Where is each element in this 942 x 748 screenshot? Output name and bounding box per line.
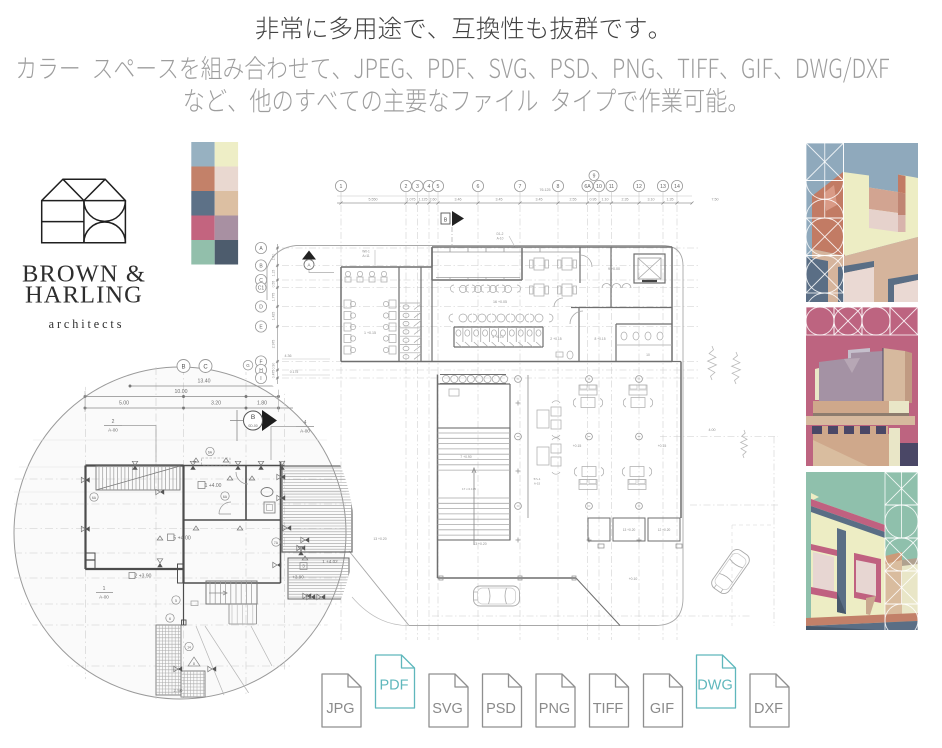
svg-text:B: B	[181, 365, 185, 371]
svg-text:13: 13	[660, 184, 666, 190]
svg-text:PNG: PNG	[539, 701, 570, 717]
svg-text:D: D	[259, 305, 263, 311]
svg-text:B: B	[251, 414, 255, 421]
svg-text:17 x 0.175: 17 x 0.175	[462, 487, 476, 491]
svg-text:I: I	[260, 376, 261, 382]
svg-text:D1-2: D1-2	[497, 232, 504, 236]
svg-text:PDF: PDF	[380, 678, 409, 694]
svg-text:3.10: 3.10	[648, 198, 655, 202]
svg-text:0.90: 0.90	[272, 363, 276, 370]
svg-text:10.00: 10.00	[175, 389, 188, 395]
svg-text:1.15: 1.15	[272, 270, 276, 277]
svg-text:SVG: SVG	[432, 701, 463, 717]
svg-text:C: C	[203, 365, 208, 371]
svg-text:12 +0.20: 12 +0.20	[658, 528, 671, 532]
svg-text:architects: architects	[49, 317, 125, 331]
svg-text:6: 6	[477, 184, 480, 190]
svg-text:3.20: 3.20	[211, 401, 221, 407]
svg-text:13.40: 13.40	[198, 379, 211, 385]
svg-text:0D-00: 0D-00	[248, 424, 257, 428]
svg-text:JPG: JPG	[326, 701, 354, 717]
svg-text:2.55: 2.55	[570, 198, 577, 202]
svg-text:0.475: 0.475	[272, 370, 276, 379]
svg-text:12: 12	[636, 184, 642, 190]
svg-text:0.95: 0.95	[590, 198, 597, 202]
svg-text:6A: 6A	[92, 496, 97, 500]
svg-text:TIFF: TIFF	[593, 701, 624, 717]
svg-text:1 +0.15: 1 +0.15	[364, 331, 376, 335]
svg-text:A-00: A-00	[99, 595, 109, 600]
svg-text:57+1: 57+1	[534, 477, 541, 481]
svg-text:5.00: 5.00	[119, 401, 129, 407]
svg-text:A-10: A-10	[497, 237, 504, 241]
svg-text:6: 6	[169, 617, 171, 621]
svg-text:7 +0.90: 7 +0.90	[460, 455, 472, 459]
svg-text:10: 10	[596, 184, 602, 190]
svg-text:9 +0.00: 9 +0.00	[608, 267, 620, 271]
svg-text:11: 11	[609, 184, 614, 190]
svg-text:2.35: 2.35	[622, 198, 629, 202]
svg-text:1: 1	[340, 184, 343, 190]
svg-text:6A: 6A	[584, 184, 591, 190]
svg-text:DWG: DWG	[697, 678, 732, 694]
svg-text:A-15: A-15	[534, 482, 541, 486]
svg-text:A-00: A-00	[108, 428, 118, 433]
svg-text:C1: C1	[258, 286, 265, 292]
svg-text:7: 7	[519, 184, 522, 190]
svg-text:8: 8	[557, 184, 560, 190]
svg-text:3: 3	[416, 184, 419, 190]
svg-text:6A: 6A	[223, 495, 228, 499]
svg-text:1 +4.02: 1 +4.02	[322, 559, 338, 564]
svg-text:4: 4	[304, 420, 307, 426]
svg-text:3.45: 3.45	[536, 198, 543, 202]
svg-text:5: 5	[437, 184, 440, 190]
svg-text:PSD: PSD	[486, 701, 516, 717]
svg-text:3: 3	[302, 564, 305, 569]
svg-text:2.60: 2.60	[430, 198, 437, 202]
svg-text:8: 8	[193, 662, 195, 666]
svg-text:5.550: 5.550	[369, 198, 378, 202]
svg-text:A: A	[307, 263, 310, 268]
svg-text:1.075: 1.075	[407, 198, 416, 202]
svg-text:76.125: 76.125	[540, 188, 551, 192]
svg-text:13 +0.20: 13 +0.20	[623, 528, 636, 532]
svg-text:A=11: A=11	[362, 254, 370, 258]
svg-text:5 +4.00: 5 +4.00	[173, 536, 191, 542]
svg-text:8 +0.15: 8 +0.15	[594, 337, 605, 341]
svg-text:1.80: 1.80	[257, 401, 267, 407]
svg-text:4.36: 4.36	[285, 354, 292, 358]
svg-text:7.50: 7.50	[712, 198, 719, 202]
svg-text:4: 4	[428, 184, 431, 190]
svg-text:+0.15: +0.15	[573, 444, 582, 448]
svg-text:13 +0.20: 13 +0.20	[373, 537, 386, 541]
svg-text:GIF: GIF	[650, 701, 674, 717]
svg-text:0.55: 0.55	[272, 281, 276, 288]
svg-text:0.175: 0.175	[290, 370, 299, 374]
svg-text:2 +3.90: 2 +3.90	[135, 574, 152, 580]
svg-text:2: 2	[112, 419, 115, 425]
svg-text:14: 14	[187, 646, 191, 650]
svg-text:16 +0.05: 16 +0.05	[493, 300, 507, 304]
svg-text:3.45: 3.45	[496, 198, 503, 202]
svg-text:1.425: 1.425	[272, 312, 276, 321]
svg-text:6A: 6A	[208, 451, 213, 455]
svg-text:+3.90: +3.90	[292, 575, 304, 580]
svg-text:2.975: 2.975	[272, 340, 276, 349]
svg-text:7A: 7A	[274, 541, 279, 545]
svg-text:DXF: DXF	[754, 701, 783, 717]
svg-text:1.10: 1.10	[602, 198, 609, 202]
svg-text:G: G	[246, 363, 250, 368]
svg-text:4.00: 4.00	[709, 428, 716, 432]
svg-text:2 +0.15: 2 +0.15	[550, 337, 562, 341]
svg-text:HARLING: HARLING	[25, 282, 143, 309]
svg-text:14: 14	[674, 184, 680, 190]
svg-text:4 +0.10: 4 +0.10	[492, 335, 504, 339]
svg-text:A-00: A-00	[300, 429, 310, 434]
svg-text:3.46: 3.46	[455, 198, 462, 202]
svg-text:1 +4.00: 1 +4.00	[205, 483, 222, 489]
svg-text:10: 10	[646, 353, 650, 357]
svg-text:1.125: 1.125	[419, 198, 428, 202]
svg-text:1: 1	[103, 586, 106, 592]
svg-text:W0-1: W0-1	[362, 250, 370, 254]
svg-text:13 +0.20: 13 +0.20	[473, 542, 486, 546]
svg-text:5: 5	[175, 599, 177, 603]
svg-text:1.35: 1.35	[667, 198, 674, 202]
svg-text:1.775: 1.775	[272, 293, 276, 302]
svg-text:+0.15: +0.15	[658, 444, 667, 448]
svg-text:9: 9	[593, 174, 596, 180]
svg-text:2: 2	[405, 184, 408, 190]
svg-text:+0.10: +0.10	[629, 577, 638, 581]
